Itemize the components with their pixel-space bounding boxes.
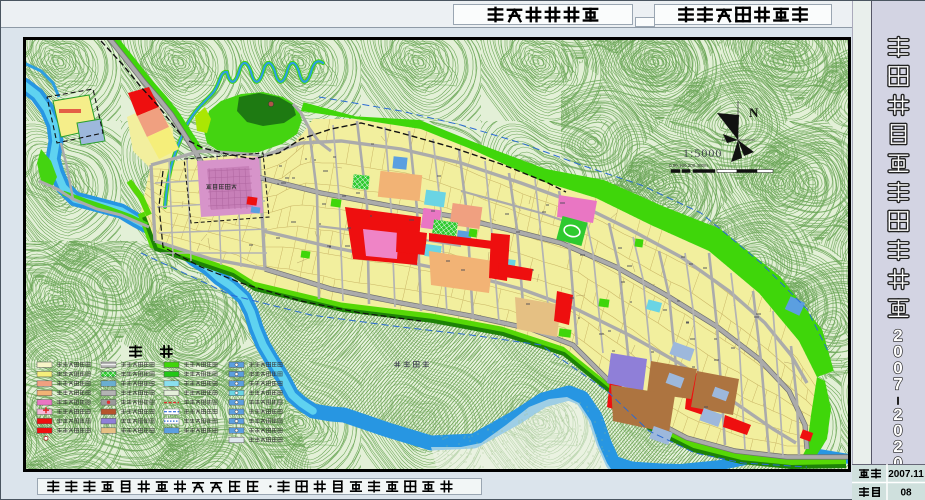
svg-text:0: 0: [893, 453, 902, 464]
svg-text:08: 08: [900, 488, 912, 499]
svg-text:2007.11: 2007.11: [888, 469, 924, 480]
svg-text:7: 7: [893, 375, 902, 394]
